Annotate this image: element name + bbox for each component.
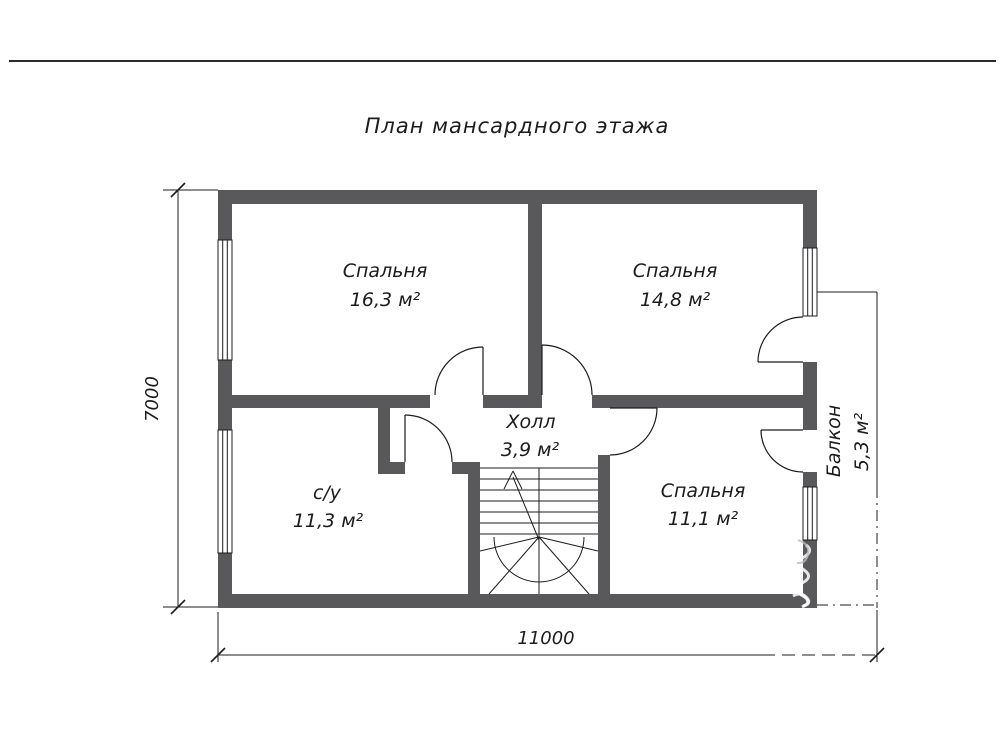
room-label-balcony-name: Балкон bbox=[823, 405, 845, 477]
exterior-wall-left-seg1 bbox=[218, 190, 232, 240]
hall-lower-wall-seg1 bbox=[378, 462, 405, 474]
room-label-bedroom2-area: 14,8 м² bbox=[640, 289, 711, 311]
window-right-lower-icon bbox=[803, 487, 817, 540]
room-label-hall-area: 3,9 м² bbox=[501, 439, 560, 461]
room-label-hall-name: Холл bbox=[506, 411, 556, 433]
page-title: План мансардного этажа bbox=[365, 114, 670, 138]
interior-wall-horizontal-right bbox=[592, 395, 803, 408]
dimension-height-7000: 7000 bbox=[142, 183, 218, 614]
door-balcony-from-bedroom2 bbox=[758, 317, 803, 362]
staircase bbox=[480, 468, 598, 594]
door-bedroom2 bbox=[542, 345, 592, 395]
floor-plan-drawing: 7000 11000 План мансардного этажа Спальн… bbox=[0, 0, 1005, 754]
dimension-label-11000: 11000 bbox=[517, 628, 574, 649]
dimension-label-7000: 7000 bbox=[142, 376, 163, 422]
exterior-wall-right-seg2 bbox=[803, 362, 817, 430]
dimension-width-11000: 11000 bbox=[211, 610, 884, 662]
floor-plan-page: 7000 11000 План мансардного этажа Спальн… bbox=[0, 0, 1005, 754]
room-label-bedroom3-name: Спальня bbox=[661, 480, 746, 502]
door-bathroom bbox=[405, 415, 452, 462]
door-balcony-from-bedroom3 bbox=[761, 430, 803, 472]
room-label-bedroom1-area: 16,3 м² bbox=[350, 289, 421, 311]
window-left-lower-icon bbox=[218, 430, 232, 553]
window-left-upper-icon bbox=[218, 240, 232, 360]
exterior-wall-right-seg3 bbox=[803, 472, 817, 487]
hall-left-wall bbox=[378, 404, 390, 462]
exterior-wall-top bbox=[218, 190, 817, 204]
window-right-upper-icon bbox=[803, 248, 817, 316]
exterior-wall-right-seg1 bbox=[803, 190, 817, 248]
room-label-bedroom1-name: Спальня bbox=[343, 260, 428, 282]
interior-wall-bedrooms-divider bbox=[528, 204, 542, 395]
exterior-wall-left-seg2 bbox=[218, 360, 232, 430]
stair-right-wall bbox=[598, 455, 610, 594]
doors bbox=[405, 317, 803, 472]
room-label-balcony-area: 5,3 м² bbox=[851, 413, 873, 472]
room-label-bathroom-name: с/у bbox=[313, 482, 342, 504]
room-label-bathroom-area: 11,3 м² bbox=[293, 510, 364, 532]
door-bedroom1 bbox=[435, 347, 483, 395]
stair-left-wall bbox=[468, 474, 480, 594]
exterior-wall-bottom bbox=[218, 594, 817, 608]
interior-wall-horizontal-mid bbox=[483, 395, 542, 408]
room-label-bedroom3-area: 11,1 м² bbox=[668, 508, 739, 530]
stair-up-arrow-icon bbox=[504, 471, 539, 540]
stair-winder-treads bbox=[480, 537, 598, 594]
hall-lower-wall-seg2 bbox=[452, 462, 480, 474]
walls bbox=[218, 190, 817, 608]
exterior-wall-left-seg3 bbox=[218, 553, 232, 608]
room-label-bedroom2-name: Спальня bbox=[633, 260, 718, 282]
door-bedroom3 bbox=[610, 408, 657, 455]
interior-wall-horizontal-left bbox=[232, 395, 430, 408]
